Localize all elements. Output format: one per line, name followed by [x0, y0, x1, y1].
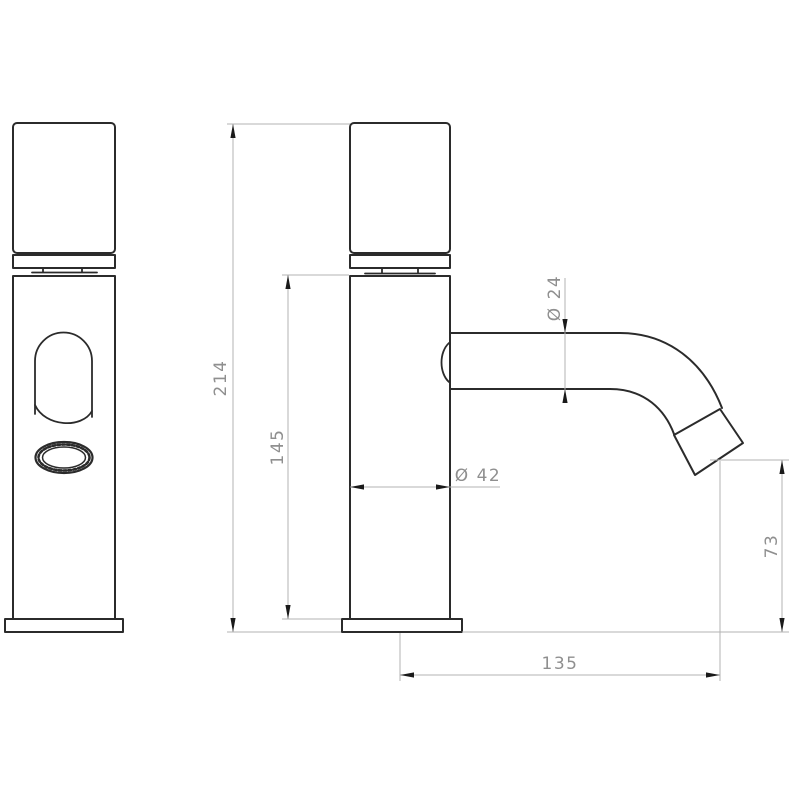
arrowhead-right-icon: [436, 484, 450, 489]
arrowhead-left-icon: [400, 672, 414, 677]
dimension-spout-diameter: Ø 24: [545, 275, 568, 403]
dimension-body-diameter: Ø 42: [350, 466, 501, 490]
arrowhead-up-icon: [779, 460, 784, 474]
side-spout-aerator-tip: [674, 409, 743, 475]
front-handle: [13, 123, 115, 253]
arrowhead-down-icon: [779, 618, 784, 632]
dim-label-73: 73: [762, 534, 782, 559]
side-spout-bottom-line: [450, 389, 674, 434]
side-spout-top-line: [450, 333, 722, 408]
technical-drawing-canvas: 214 145 Ø 42 Ø 24: [0, 0, 800, 800]
arrowhead-up-icon: [230, 124, 235, 138]
arrowhead-down-icon: [230, 618, 235, 632]
side-body: [350, 276, 450, 619]
arrowhead-right-icon: [706, 672, 720, 677]
front-outlet-aerator-knurl: [39, 445, 90, 471]
dimension-outlet-height: 73: [462, 460, 789, 632]
front-handle-band: [13, 255, 115, 268]
front-spout-arch: [35, 333, 92, 418]
side-handle: [350, 123, 450, 253]
front-spout: [35, 333, 93, 474]
front-base-flange: [5, 619, 123, 632]
side-base-flange: [342, 619, 462, 632]
dim-label-135: 135: [542, 654, 579, 674]
side-spout-body-intersection-curve: [442, 343, 450, 382]
arrowhead-up-icon: [562, 389, 567, 403]
dimensions: 214 145 Ø 42 Ø 24: [211, 124, 789, 681]
arrowhead-up-icon: [285, 275, 290, 289]
dim-label-145: 145: [268, 429, 288, 466]
dim-label-d24: Ø 24: [545, 275, 565, 321]
dimension-spout-reach: 135: [400, 461, 720, 681]
side-view: [342, 123, 743, 632]
dim-label-d42: Ø 42: [455, 466, 501, 486]
arrowhead-left-icon: [350, 484, 364, 489]
side-handle-band: [350, 255, 450, 268]
drawing-page: 214 145 Ø 42 Ø 24: [0, 0, 800, 800]
dimension-body-height: 145: [268, 275, 349, 619]
side-spout: [442, 333, 744, 475]
dimension-total-height: 214: [211, 124, 350, 632]
dim-label-214: 214: [211, 360, 231, 397]
arrowhead-down-icon: [285, 605, 290, 619]
front-outlet-inner-ring: [43, 447, 86, 468]
front-view: [5, 123, 123, 632]
front-spout-bend-silhouette: [35, 405, 92, 423]
